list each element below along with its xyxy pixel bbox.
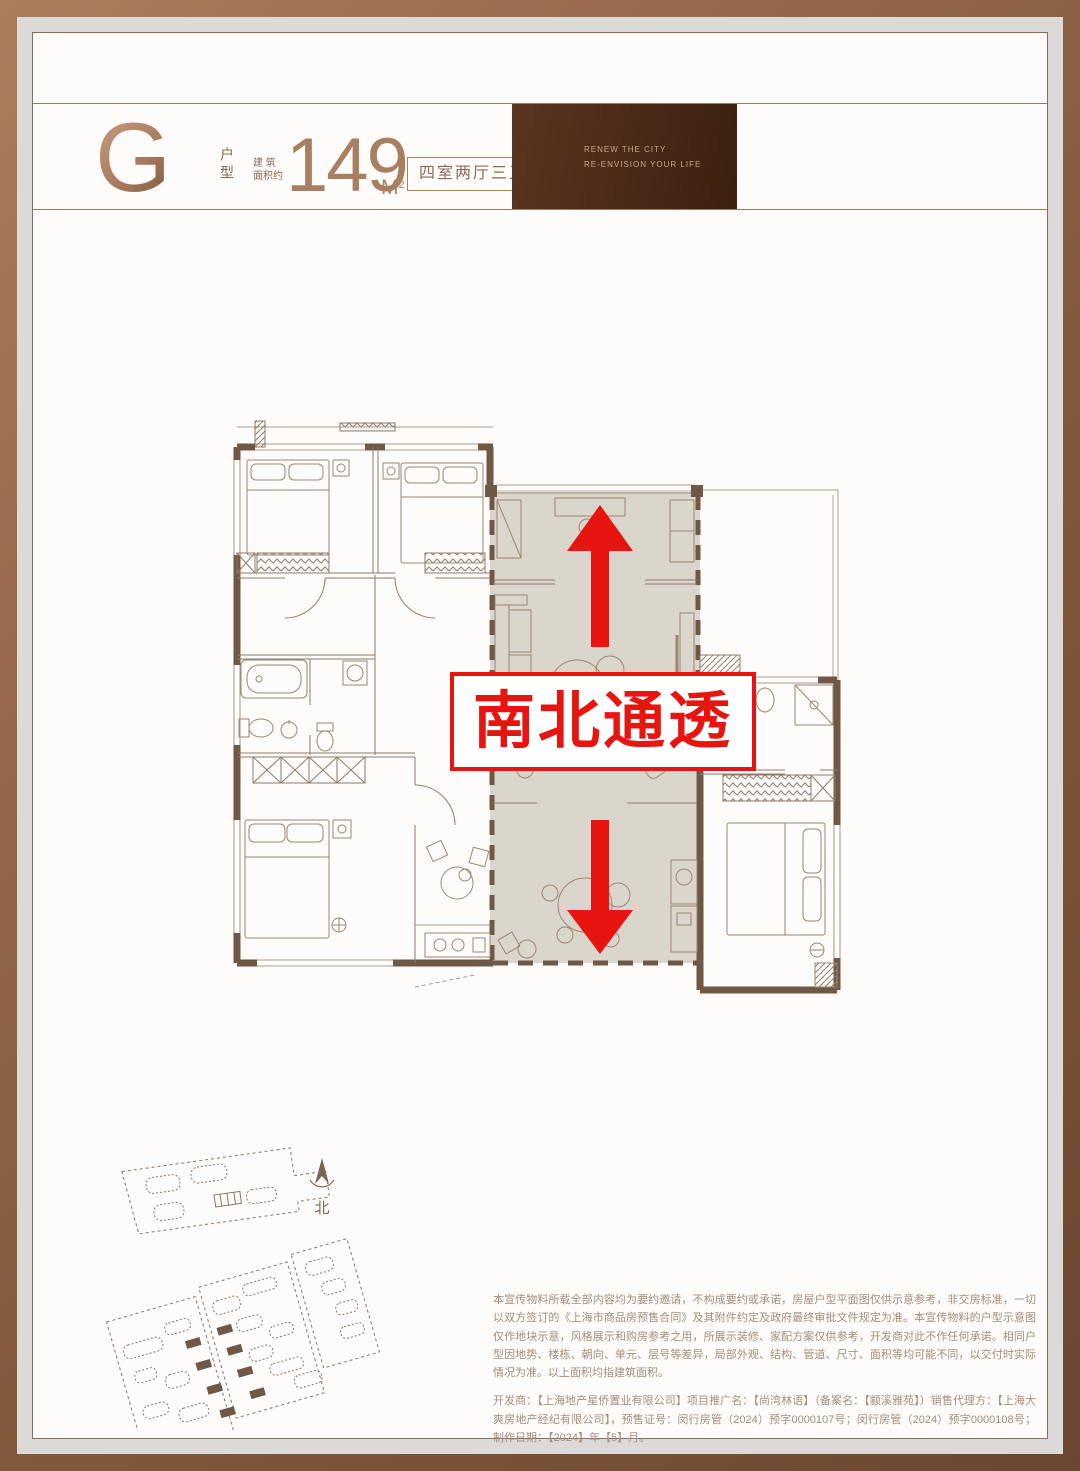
unit-letter: G (95, 108, 171, 206)
area-unit-letter: M (381, 176, 399, 199)
brand-photo-panel: RENEW THE CITY RE-ENVISION YOUR LIFE (512, 104, 737, 209)
brand-tagline-line2: RE-ENVISION YOUR LIFE (584, 157, 701, 172)
brand-tagline: RENEW THE CITY RE-ENVISION YOUR LIFE (584, 141, 701, 171)
area-unit-exponent: 2 (399, 179, 405, 191)
area-unit: M2 (381, 176, 405, 200)
site-plan-sketch (95, 1126, 390, 1431)
highlight-banner-text: 南北通透 (473, 691, 733, 753)
unit-type-label: 户型 (219, 147, 237, 183)
poster: G 户型 建 筑 面积约 149 M2 四室两厅三卫 RENEW THE CIT… (0, 0, 1080, 1471)
disclaimer: 本宣传物料所载全部内容均为要约邀请，不构成要约或承诺，房屋户型平面图仅供示意参考… (493, 1291, 1036, 1457)
area-prefix-line2: 面积约 (253, 170, 283, 183)
area-prefix-line1: 建 筑 (253, 157, 283, 170)
area-prefix: 建 筑 面积约 (253, 157, 283, 183)
header-bottom-rule (33, 209, 1047, 210)
disclaimer-paragraph-2: 开发商：【上海地产星侨置业有限公司】项目推广名：【尚湾林语】（备案名：【颛溪雅苑… (493, 1392, 1036, 1447)
highlight-banner: 南北通透 (450, 672, 756, 771)
disclaimer-paragraph-1: 本宣传物料所载全部内容均为要约邀请，不构成要约或承诺，房屋户型平面图仅供示意参考… (493, 1291, 1036, 1382)
brand-tagline-line1: RENEW THE CITY (584, 141, 701, 156)
